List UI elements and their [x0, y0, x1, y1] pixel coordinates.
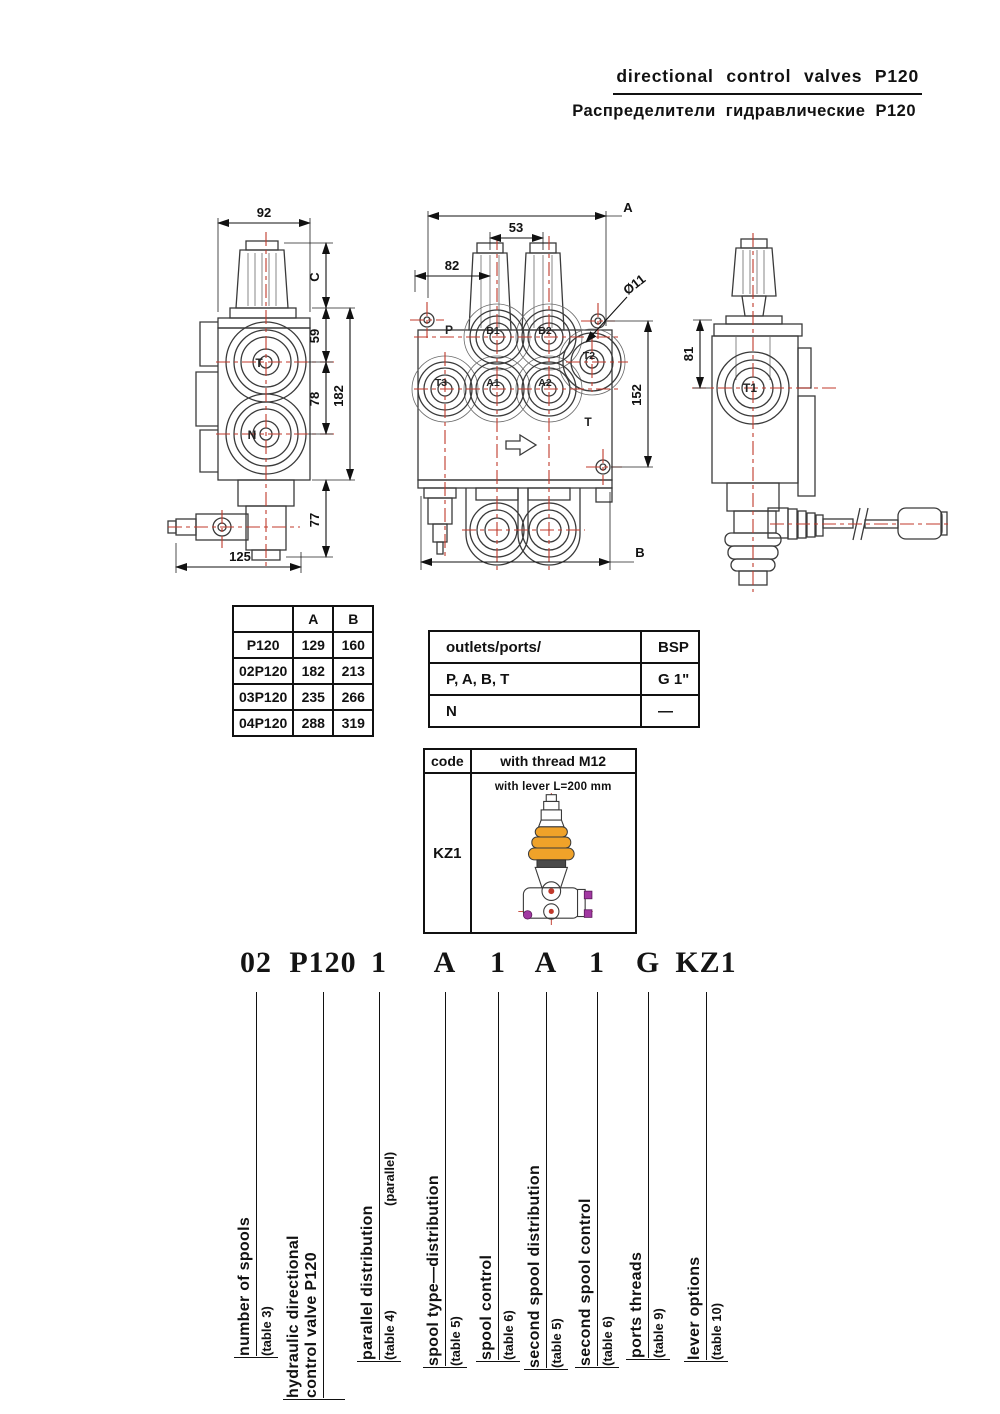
size-cell: 02P120 — [233, 658, 293, 684]
port-label: P — [445, 323, 453, 337]
size-table: ABP12012916002P12018221303P12023526604P1… — [232, 605, 374, 737]
port-label: T3 — [435, 377, 447, 389]
ordering-table-ref: (table 3) — [259, 1306, 275, 1356]
right-side-view: 81 T1 — [681, 233, 952, 592]
size-cell: P120 — [233, 632, 293, 658]
port-label: T — [255, 356, 263, 370]
ordering-label-text: lever options — [686, 1257, 704, 1360]
size-header-cell: A — [293, 606, 333, 632]
port-label: T2 — [583, 350, 595, 362]
size-cell: 129 — [293, 632, 333, 658]
ports-header-cell: outlets/ports/ — [429, 631, 641, 663]
datasheet-page: directional control valves P120 Распреде… — [0, 0, 1000, 1414]
ordering-label-baseline — [234, 1357, 278, 1358]
ordering-label-text: hydraulic directional — [285, 1235, 303, 1398]
ordering-code-value: 1 — [589, 946, 605, 980]
dim-label: A — [623, 200, 633, 215]
dim-label: 59 — [307, 329, 322, 343]
ordering-label-text: number of spools — [236, 1217, 254, 1356]
lever-caption: with lever L=200 mm — [473, 781, 634, 793]
front-view: A 53 82 Ø11 152 B P B1 B2 T3 A1 A2 T2 T — [410, 200, 653, 572]
ordering-leader-line — [546, 992, 547, 1368]
dim-label: 78 — [307, 392, 322, 406]
ordering-label-baseline — [357, 1361, 401, 1362]
ordering-code-value: KZ1 — [675, 946, 736, 980]
ports-header-cell: BSP — [641, 631, 699, 663]
ordering-label-baseline — [684, 1361, 728, 1362]
size-cell: 266 — [333, 684, 373, 710]
port-label: N — [248, 428, 257, 442]
ordering-label-text: parallel distribution — [359, 1205, 377, 1360]
ordering-label-baseline — [626, 1359, 670, 1360]
ordering-code-value: A — [535, 946, 558, 980]
dim-label: 152 — [629, 384, 644, 406]
dim-label: B — [635, 545, 644, 560]
size-cell: 04P120 — [233, 710, 293, 736]
table-row: 04P120288319 — [233, 710, 373, 736]
port-label: T — [584, 415, 592, 429]
ordering-label-text: spool type—distribution — [425, 1175, 443, 1366]
ordering-table-ref: (table 6) — [501, 1310, 517, 1360]
table-row: 03P120235266 — [233, 684, 373, 710]
ordering-label-text: ports threads — [628, 1252, 646, 1358]
ordering-code-value: A — [434, 946, 457, 980]
size-cell: 319 — [333, 710, 373, 736]
thread-header-cell: with thread M12 — [471, 749, 636, 773]
size-header-cell — [233, 606, 293, 632]
ordering-leader-line — [256, 992, 257, 1356]
ordering-code-value: 1 — [371, 946, 387, 980]
ordering-extra-note: (parallel) — [382, 1152, 398, 1206]
table-row: P120129160 — [233, 632, 373, 658]
size-cell: 235 — [293, 684, 333, 710]
dim-label: 53 — [509, 220, 523, 235]
port-label: A1 — [486, 377, 500, 389]
dim-label: C — [307, 272, 322, 282]
size-header-cell: B — [333, 606, 373, 632]
ordering-leader-line — [498, 992, 499, 1360]
table-row: KZ1 with lever L=200 mm — [424, 773, 636, 933]
ordering-leader-line — [323, 992, 324, 1398]
size-cell: 213 — [333, 658, 373, 684]
ordering-code-value: 1 — [490, 946, 506, 980]
dim-label: 77 — [307, 513, 322, 527]
port-label: B2 — [538, 325, 552, 337]
ports-cell: N — [429, 695, 641, 727]
ordering-label-baseline — [524, 1369, 568, 1370]
ordering-label-text: second spool control — [577, 1198, 595, 1366]
dim-label: 82 — [445, 258, 459, 273]
lever-illustration — [473, 793, 633, 925]
left-side-view: 92 C 59 78 182 77 125 T N — [168, 205, 355, 573]
ordering-code-value: 02 — [240, 946, 272, 980]
size-cell: 03P120 — [233, 684, 293, 710]
ports-cell: G 1" — [641, 663, 699, 695]
dim-label: 125 — [229, 549, 251, 564]
ordering-table-ref: (table 6) — [600, 1316, 616, 1366]
ordering-label-baseline — [575, 1367, 619, 1368]
ordering-label-text: spool control — [478, 1255, 496, 1360]
size-table-body: ABP12012916002P12018221303P12023526604P1… — [233, 606, 373, 736]
ordering-label-baseline — [283, 1399, 345, 1400]
dim-label: 81 — [681, 347, 696, 361]
ordering-label-baseline — [476, 1361, 520, 1362]
dim-label: 92 — [257, 205, 271, 220]
ports-table-body: outlets/ports/BSPP, A, B, TG 1"N— — [429, 631, 699, 727]
ordering-leader-line — [379, 992, 380, 1360]
table-row: 02P120182213 — [233, 658, 373, 684]
size-cell: 288 — [293, 710, 333, 736]
ordering-table-ref: (table 10) — [709, 1303, 725, 1360]
ordering-label-text: control valve P120 — [303, 1252, 321, 1398]
ordering-table-ref: (table 9) — [651, 1308, 667, 1358]
table-row: P, A, B, TG 1" — [429, 663, 699, 695]
ordering-leader-line — [706, 992, 707, 1360]
ports-table: outlets/ports/BSPP, A, B, TG 1"N— — [428, 630, 700, 728]
ports-cell: P, A, B, T — [429, 663, 641, 695]
ordering-code-value: G — [636, 946, 660, 980]
technical-drawings: 92 C 59 78 182 77 125 T N — [0, 0, 1000, 700]
ordering-table-ref: (table 4) — [382, 1310, 398, 1360]
port-label: B1 — [486, 325, 500, 337]
code-value-cell: KZ1 — [424, 773, 471, 933]
ordering-leader-line — [597, 992, 598, 1366]
ordering-label-text: second spool distribution — [526, 1165, 544, 1368]
table-row: N— — [429, 695, 699, 727]
ports-cell: — — [641, 695, 699, 727]
size-cell: 160 — [333, 632, 373, 658]
ordering-leader-line — [648, 992, 649, 1358]
port-label: A2 — [538, 377, 552, 389]
port-label: T1 — [743, 381, 757, 395]
ordering-code-value: P120 — [289, 946, 356, 980]
lever-image-cell: with lever L=200 mm — [471, 773, 636, 933]
table-row: code with thread M12 — [424, 749, 636, 773]
code-header-cell: code — [424, 749, 471, 773]
table-row: outlets/ports/BSP — [429, 631, 699, 663]
dim-label: Ø11 — [620, 271, 648, 298]
lever-option-table: code with thread M12 KZ1 with lever L=20… — [423, 748, 637, 934]
ordering-leader-line — [445, 992, 446, 1366]
dim-label: 182 — [331, 385, 346, 407]
ordering-table-ref: (table 5) — [448, 1316, 464, 1366]
table-row: AB — [233, 606, 373, 632]
ordering-table-ref: (table 5) — [549, 1318, 565, 1368]
ordering-label-baseline — [423, 1367, 467, 1368]
size-cell: 182 — [293, 658, 333, 684]
